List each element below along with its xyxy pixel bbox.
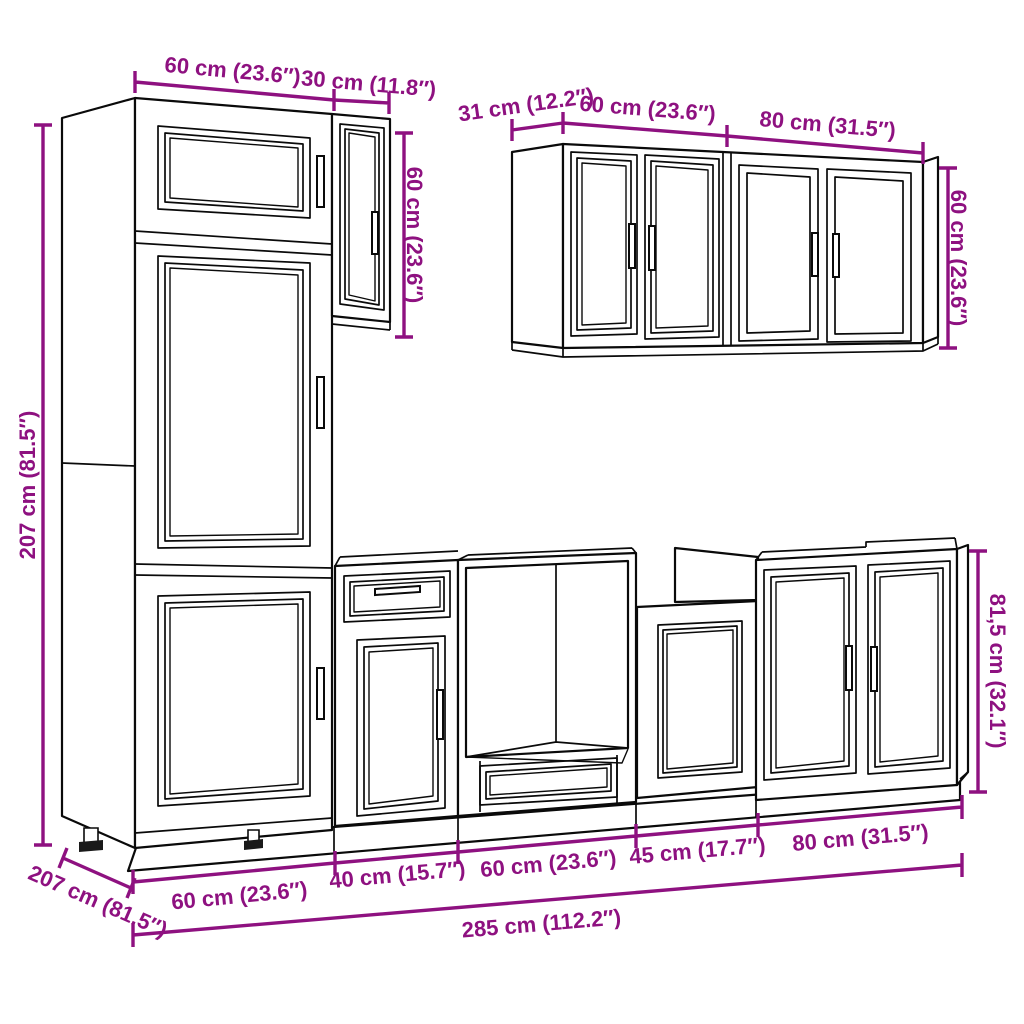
wall60-handle-right — [649, 226, 655, 270]
wall80-handle-left — [812, 233, 818, 276]
dimension-wall-height: 60 cm (23.6″) — [939, 168, 971, 348]
tall-cabinet — [62, 98, 332, 848]
base-cabinet-80 — [756, 538, 968, 800]
dim-label-base-seg3: 60 cm (23.6″) — [479, 845, 617, 882]
tall-middle-door-handle — [317, 377, 324, 428]
dimension-small-wall-width: 30 cm (11.8″) — [300, 65, 437, 114]
tall-lower-door-handle — [317, 668, 324, 719]
dim-label-small-wall-width: 30 cm (11.8″) — [300, 65, 437, 102]
dim-label-tall-width-top: 60 cm (23.6″) — [164, 52, 302, 89]
product-dimension-image: 60 cm (23.6″) 30 cm (11.8″) 60 cm (23.6″… — [0, 0, 1024, 1024]
wall-cabinet-right-side — [923, 157, 938, 343]
dim-label-base-seg1: 60 cm (23.6″) — [170, 877, 308, 915]
dimension-wall60-width: 60 cm (23.6″) — [563, 91, 727, 147]
oven-cavity — [466, 561, 628, 757]
dimension-base-height: 81,5 cm (32.1″) — [969, 551, 1010, 792]
kitchen-dimension-diagram: 60 cm (23.6″) 30 cm (11.8″) 60 cm (23.6″… — [0, 0, 1024, 1024]
dim-label-wall-height: 60 cm (23.6″) — [946, 190, 971, 327]
dim-label-base-seg5: 80 cm (31.5″) — [791, 819, 929, 856]
tall-top-door-handle — [317, 156, 324, 207]
small-wall-cabinet — [332, 114, 390, 330]
tall-cabinet-side — [62, 98, 135, 848]
dim-label-total-width: 285 cm (112.2″) — [461, 904, 622, 942]
dim-label-base-height: 81,5 cm (32.1″) — [985, 594, 1010, 749]
dimension-tall-height: 207 cm (81.5″) — [15, 125, 52, 845]
wall-cabinet-side — [512, 144, 563, 348]
dim-label-wall60-width: 60 cm (23.6″) — [579, 91, 717, 127]
base40-door-handle — [437, 690, 443, 739]
dimension-wall-depth: 31 cm (12.2″) — [457, 83, 596, 141]
wall60-handle-left — [629, 224, 635, 268]
base-cabinet-60-oven — [458, 548, 636, 816]
dim-label-small-wall-height: 60 cm (23.6″) — [402, 167, 427, 304]
base45-front — [637, 601, 758, 798]
base80-handle-left — [846, 646, 852, 690]
base45-back-panel — [675, 548, 758, 602]
base80-right-side — [957, 545, 968, 785]
dim-label-wall80-width: 80 cm (31.5″) — [759, 106, 897, 143]
base-cabinet-45 — [637, 548, 758, 798]
base80-handle-right — [871, 647, 877, 691]
wall-cabinet-group — [512, 144, 938, 357]
dim-label-base-seg4: 45 cm (17.7″) — [628, 832, 766, 869]
dim-label-tall-height: 207 cm (81.5″) — [15, 411, 40, 560]
wall80-handle-right — [833, 234, 839, 277]
base-cabinet-40 — [335, 551, 458, 826]
dimension-small-wall-height: 60 cm (23.6″) — [395, 133, 427, 337]
small-wall-door-handle — [372, 212, 378, 254]
dim-label-wall-depth: 31 cm (12.2″) — [457, 83, 596, 127]
wall-cabinet-front — [563, 144, 923, 348]
